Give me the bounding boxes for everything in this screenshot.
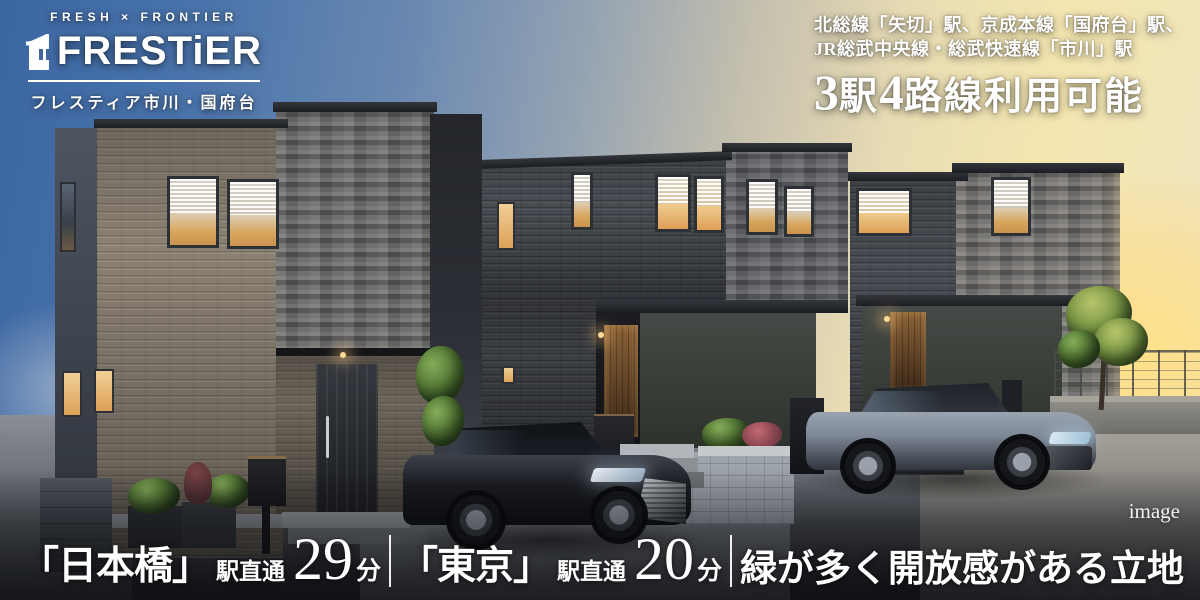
car-grille xyxy=(1044,446,1092,470)
house-left-roof-upper xyxy=(273,102,437,112)
minutes-unit: 分 xyxy=(356,551,381,587)
house-right-roof-upper xyxy=(952,163,1124,173)
house-left-stone-tower xyxy=(276,108,434,354)
porch-lamp xyxy=(340,352,346,358)
window xyxy=(502,366,515,384)
brand-tagline: FRESH × FRONTIER xyxy=(26,10,262,24)
direct-label: 駅直通 xyxy=(557,552,626,586)
porch-lamp xyxy=(598,332,604,338)
house-left-roof xyxy=(94,119,288,128)
window xyxy=(991,177,1031,236)
window xyxy=(856,188,912,236)
logo-divider xyxy=(28,80,260,82)
vertical-divider xyxy=(730,535,732,587)
station-name: 「東京」 xyxy=(399,535,551,591)
house-center-canopy xyxy=(596,300,848,313)
house-icon-window xyxy=(39,49,43,60)
window xyxy=(571,172,593,230)
brand-row: FRESTiER xyxy=(26,31,262,71)
house-icon xyxy=(26,32,49,70)
window xyxy=(497,202,515,250)
route-tokyo: 「東京」 駅直通 20 分 xyxy=(399,532,722,591)
window xyxy=(655,174,691,232)
direct-label: 駅直通 xyxy=(216,552,285,586)
house-center-roof-upper xyxy=(722,143,852,152)
access-headline: 3駅4路線利用可能 xyxy=(814,67,1184,117)
access-line-2: JR総武中央線・総武快速線「市川」駅 xyxy=(814,37,1184,61)
station-name: 「日本橋」 xyxy=(20,535,210,591)
minutes-unit: 分 xyxy=(697,551,722,587)
window xyxy=(60,182,76,252)
window xyxy=(746,179,778,235)
window xyxy=(694,176,724,233)
planter-flowers xyxy=(742,422,782,448)
minutes-value: 20 xyxy=(634,532,694,586)
planter-edge xyxy=(698,446,794,456)
minutes-value: 29 xyxy=(293,532,353,586)
window xyxy=(167,176,219,248)
access-note: 北総線「矢切」駅、京成本線「国府台」駅、 JR総武中央線・総武快速線「市川」駅 … xyxy=(814,13,1184,117)
bottom-info-bar: 「日本橋」 駅直通 29 分 「東京」 駅直通 20 分 緑が多く開放感がある立… xyxy=(0,522,1200,600)
window xyxy=(227,179,279,249)
access-line-1: 北総線「矢切」駅、京成本線「国府台」駅、 xyxy=(814,13,1184,37)
house-right-roof xyxy=(848,172,968,181)
brand-logo-block: FRESH × FRONTIER FRESTiER フレスティア市川・国府台 xyxy=(26,10,262,113)
image-watermark: image xyxy=(1129,499,1180,524)
brand-subtitle: フレスティア市川・国府台 xyxy=(26,89,262,113)
headline-rest: 路線利用可能 xyxy=(904,76,1144,118)
window xyxy=(784,186,814,237)
location-feature: 緑が多く開放感がある立地 xyxy=(740,550,1184,591)
window xyxy=(62,371,82,417)
vertical-divider xyxy=(389,535,391,587)
property-ad-banner: FRESH × FRONTIER FRESTiER フレスティア市川・国府台 北… xyxy=(0,0,1200,600)
porch-lamp xyxy=(884,316,890,322)
brand-name: FRESTiER xyxy=(57,31,262,71)
route-nihombashi: 「日本橋」 駅直通 29 分 xyxy=(20,532,381,591)
station-unit: 駅 xyxy=(839,76,879,118)
window xyxy=(94,369,114,413)
station-count: 3 xyxy=(814,64,839,120)
line-count: 4 xyxy=(879,64,904,120)
entrance-door-right xyxy=(890,312,926,392)
headlight xyxy=(1048,432,1091,444)
door-handle xyxy=(326,416,329,458)
